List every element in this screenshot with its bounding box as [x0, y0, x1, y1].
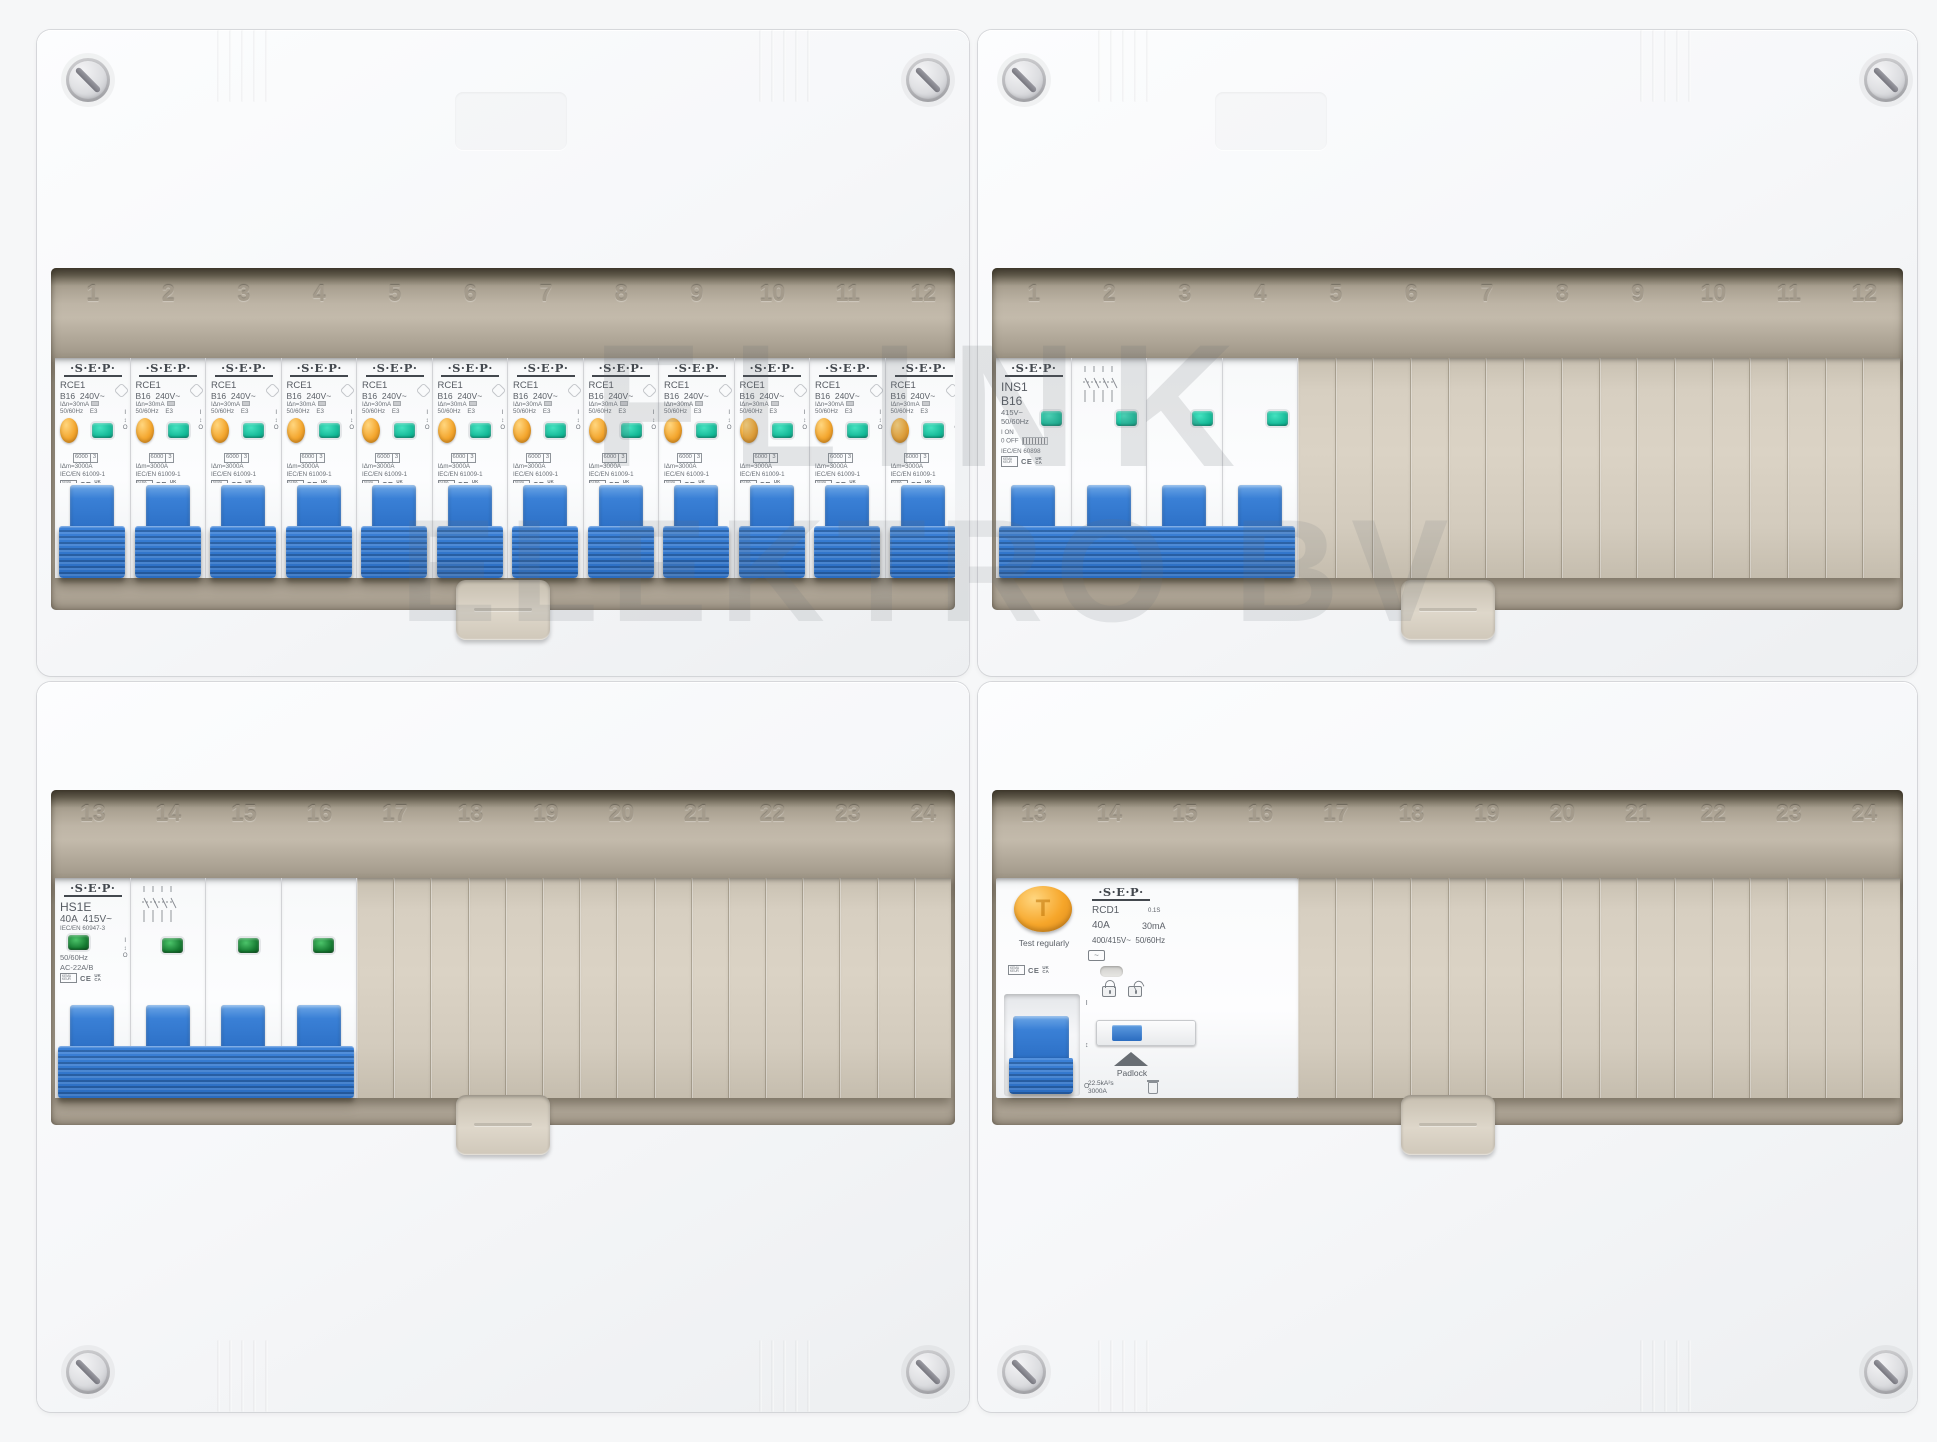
frequency-label: 50/60Hz E3 — [211, 408, 277, 416]
module-number: 4 — [1223, 280, 1299, 310]
utilization-category-label: AC-22A/B — [60, 963, 126, 972]
status-indicator-window — [319, 423, 340, 438]
si-badge — [242, 401, 250, 406]
test-button[interactable] — [362, 418, 380, 443]
on-off-markings: I↕O — [198, 410, 203, 433]
module-number: 24 — [1827, 800, 1903, 830]
status-indicator-window — [1100, 966, 1123, 977]
on-off-markings: I↕O — [349, 410, 354, 433]
rcbo-breaker-rce1[interactable]: ·S·E·P· RCE1 B16 240V~ IΔn=30mA 50/60Hz … — [206, 358, 282, 578]
blanking-strip — [1787, 878, 1825, 1098]
status-indicator-window — [1267, 411, 1288, 426]
sep-brand-logo: ·S·E·P· — [895, 362, 953, 377]
trip-current-label: IΔn=30mA — [211, 401, 277, 409]
kema-keur-mark: KEMA KEUR — [60, 973, 77, 983]
vent-ribs — [1098, 1340, 1149, 1412]
breaking-capacity-label: 3000A — [1088, 1088, 1107, 1095]
toggle-recess — [810, 483, 885, 578]
standard-label: IEC/EN 61009-1 — [438, 471, 504, 479]
rcd-toggle-recess — [1004, 994, 1080, 1096]
status-indicator-window — [772, 423, 793, 438]
sep-brand-logo: ·S·E·P· — [517, 362, 575, 377]
module-number: 23 — [1751, 800, 1827, 830]
frequency-label: 50/60Hz E3 — [60, 408, 126, 416]
status-indicator-window — [238, 938, 259, 953]
rcd-toggle-flap[interactable] — [1009, 1058, 1073, 1094]
isolator-pole-face — [1223, 358, 1298, 483]
rcbo-label-face: ·S·E·P· RCE1 B16 240V~ IΔn=30mA 50/60Hz … — [659, 358, 734, 483]
certification-marks: KEMA KEUR CE UK CA — [1008, 965, 1051, 975]
main-switch-hs1e[interactable]: ·S·E·P· HS1E 40A 415V~ IEC/EN 60947-3 50… — [55, 878, 357, 1098]
blanking-strip — [1674, 878, 1712, 1098]
toggle-recess — [206, 483, 281, 578]
circuit-diagram-icon — [139, 884, 177, 926]
cover-latch[interactable] — [456, 580, 550, 640]
module-number: 1 — [55, 280, 131, 310]
toggle-recess — [357, 483, 432, 578]
toggle-recess — [886, 483, 956, 578]
standard-label: IEC/EN 60947-3 — [60, 925, 126, 933]
rcbo-breaker-rce1[interactable]: ·S·E·P· RCE1 B16 240V~ IΔn=30mA 50/60Hz … — [735, 358, 811, 578]
module-number-strip: 123456789101112 — [55, 280, 955, 310]
module-number-strip: 123456789101112 — [996, 280, 1902, 310]
toggle-recess — [433, 483, 508, 578]
on-off-markings: I↕O — [576, 410, 581, 433]
breaking-capacity-badge: 60003 — [149, 453, 174, 463]
blanking-strip — [1372, 878, 1410, 1098]
sep-brand-logo: ·S·E·P· — [668, 362, 726, 377]
breaker-toggle-flap[interactable] — [588, 526, 654, 578]
test-button[interactable] — [740, 418, 758, 443]
test-button[interactable] — [815, 418, 833, 443]
toggle-recess — [282, 483, 357, 578]
breaker-toggle-flap[interactable] — [512, 526, 578, 578]
on-off-markings: I↕O — [425, 410, 430, 433]
breaker-row: ·S·E·P· INS1 B16 415V~ 50/60Hz I ON 0 OF… — [996, 358, 1900, 578]
frequency-label: 50/60Hz E3 — [891, 408, 956, 416]
status-indicator-window — [1041, 411, 1062, 426]
isolator-toggle-bar[interactable] — [999, 526, 1295, 578]
im-label: IΔm=3000A — [136, 463, 202, 471]
breaking-capacity-badge: 60003 — [753, 453, 778, 463]
voltage-frequency-label: 400/415V~ 50/60Hz — [1092, 936, 1165, 945]
module-number: 19 — [508, 800, 584, 830]
si-badge — [695, 401, 703, 406]
blanking-strip — [728, 878, 765, 1098]
blanking-strip — [1523, 878, 1561, 1098]
rcbo-breaker-rce1[interactable]: ·S·E·P· RCE1 B16 240V~ IΔn=30mA 50/60Hz … — [886, 358, 956, 578]
module-number: 4 — [282, 280, 358, 310]
trip-current-label: IΔn=30mA — [136, 401, 202, 409]
frequency-label: 50/60Hz E3 — [815, 408, 881, 416]
module-number: 11 — [810, 280, 886, 310]
module-number: 15 — [206, 800, 282, 830]
cover-screw — [66, 58, 110, 102]
module-number: 9 — [1600, 280, 1676, 310]
i2t-label: 22.5kA²s — [1088, 1080, 1114, 1087]
isolator-label-face: ·S·E·P· INS1 B16 415V~ 50/60Hz I ON 0 OF… — [996, 358, 1071, 483]
rcbo-breaker-rce1[interactable]: ·S·E·P· RCE1 B16 240V~ IΔn=30mA 50/60Hz … — [508, 358, 584, 578]
status-indicator-window — [168, 423, 189, 438]
breaker-toggle-flap[interactable] — [663, 526, 729, 578]
module-number: 15 — [1147, 800, 1223, 830]
blanking-strip — [393, 878, 430, 1098]
rcbo-label-face: ·S·E·P· RCE1 B16 240V~ IΔn=30mA 50/60Hz … — [131, 358, 206, 483]
padlock-slider[interactable] — [1096, 1020, 1196, 1046]
module-number: 7 — [508, 280, 584, 310]
module-number: 16 — [1223, 800, 1299, 830]
blanking-strip — [1410, 358, 1448, 578]
rcbo-breaker-rce1[interactable]: ·S·E·P· RCE1 B16 240V~ IΔn=30mA 50/60Hz … — [131, 358, 207, 578]
blanking-strip — [505, 878, 542, 1098]
status-indicator-window — [394, 423, 415, 438]
breaker-toggle-flap[interactable] — [739, 526, 805, 578]
cover-latch[interactable] — [1401, 1095, 1495, 1155]
breaking-capacity-badge: 60003 — [828, 453, 853, 463]
rcbo-label-face: ·S·E·P· RCE1 B16 240V~ IΔn=30mA 50/60Hz … — [886, 358, 956, 483]
rcd-test-button[interactable]: T — [1014, 886, 1072, 932]
surge-wave-icon: ~ — [1088, 950, 1105, 961]
serial-barcode — [1022, 437, 1048, 445]
blanking-strips — [1298, 878, 1900, 1098]
blanking-strip — [1825, 878, 1863, 1098]
module-number: 21 — [659, 800, 735, 830]
blanking-strip — [542, 878, 579, 1098]
module-number: 24 — [886, 800, 956, 830]
on-off-markings: I↕O — [123, 410, 128, 433]
padlock-pointer-icon — [1114, 1052, 1148, 1066]
trip-current-label: IΔn=30mA — [815, 401, 881, 409]
breaker-row: T Test regularly KEMA KEUR CE UK CA ·S·E… — [996, 878, 1900, 1098]
breaking-capacity-badge: 60003 — [224, 453, 249, 463]
standard-label: IEC/EN 61009-1 — [287, 471, 353, 479]
isolator-pole-face — [1072, 358, 1147, 483]
test-button[interactable] — [287, 418, 305, 443]
module-number: 12 — [886, 280, 956, 310]
standard-label: IEC/EN 61009-1 — [740, 471, 806, 479]
standard-label: IEC/EN 61009-1 — [60, 471, 126, 479]
module-number: 7 — [1449, 280, 1525, 310]
blanking-strip — [1448, 358, 1486, 578]
trip-current-label: IΔn=30mA — [287, 401, 353, 409]
status-indicator-window — [1116, 411, 1137, 426]
rcbo-label-face: ·S·E·P· RCE1 B16 240V~ IΔn=30mA 50/60Hz … — [433, 358, 508, 483]
test-button[interactable] — [60, 418, 78, 443]
standard-label: IEC/EN 60898 — [1001, 448, 1067, 456]
on-off-markings: I↕O — [954, 410, 955, 433]
vent-ribs — [217, 30, 268, 102]
sep-brand-logo: ·S·E·P· — [64, 362, 122, 377]
si-badge — [771, 401, 779, 406]
module-number: 20 — [1525, 800, 1601, 830]
toggle-recess — [659, 483, 734, 578]
test-button[interactable] — [891, 418, 909, 443]
test-button[interactable] — [513, 418, 531, 443]
test-button[interactable] — [438, 418, 456, 443]
kema-keur-mark: KEMA KEUR — [1008, 965, 1025, 975]
frequency-label: 50/60Hz E3 — [740, 408, 806, 416]
blanking-strip — [1485, 358, 1523, 578]
rcbo-breaker-rce1[interactable]: ·S·E·P· RCE1 B16 240V~ IΔn=30mA 50/60Hz … — [659, 358, 735, 578]
breaking-capacity-badge: 60003 — [73, 453, 98, 463]
im-label: IΔm=3000A — [664, 463, 730, 471]
sep-brand-logo: ·S·E·P· — [366, 362, 424, 377]
switch-toggle-bar[interactable] — [58, 1046, 354, 1098]
ukca-mark: UK CA — [94, 974, 103, 983]
breaking-capacity-badge: 60003 — [375, 453, 400, 463]
im-label: IΔm=3000A — [589, 463, 655, 471]
rcbo-breaker-rce1[interactable]: ·S·E·P· RCE1 B16 240V~ IΔn=30mA 50/60Hz … — [357, 358, 433, 578]
padlock-slider-thumb[interactable] — [1112, 1025, 1142, 1041]
rcbo-label-face: ·S·E·P· RCE1 B16 240V~ IΔn=30mA 50/60Hz … — [810, 358, 885, 483]
rcbo-label-face: ·S·E·P· RCE1 B16 240V~ IΔn=30mA 50/60Hz … — [735, 358, 810, 483]
blanking-strip — [430, 878, 467, 1098]
trip-current-label: IΔn=30mA — [362, 401, 428, 409]
rcd-toggle[interactable] — [1013, 1016, 1069, 1062]
cover-latch[interactable] — [456, 1095, 550, 1155]
cover-screw — [1002, 58, 1046, 102]
breaker-row: ·S·E·P· RCE1 B16 240V~ IΔn=30mA 50/60Hz … — [55, 358, 955, 578]
si-badge — [393, 401, 401, 406]
sep-brand-logo: ·S·E·P· — [592, 362, 650, 377]
breaker-toggle-flap[interactable] — [437, 526, 503, 578]
blanking-strip — [1862, 878, 1900, 1098]
breaker-toggle-flap[interactable] — [814, 526, 880, 578]
im-label: IΔm=3000A — [740, 463, 806, 471]
si-badge — [469, 401, 477, 406]
blanking-strip — [802, 878, 839, 1098]
vent-ribs — [1640, 1340, 1691, 1412]
breaker-toggle-flap[interactable] — [135, 526, 201, 578]
certification-marks: KEMA KEUR CE UK CA — [60, 973, 126, 983]
blanking-strip — [1749, 878, 1787, 1098]
toggle-recess — [55, 483, 130, 578]
breaking-capacity-badge: 60003 — [677, 453, 702, 463]
vent-ribs — [217, 1340, 268, 1412]
blanking-strip — [1410, 878, 1448, 1098]
trip-current-label: IΔn=30mA — [664, 401, 730, 409]
blanking-strip — [1749, 358, 1787, 578]
toggle-recess — [735, 483, 810, 578]
module-number: 5 — [1298, 280, 1374, 310]
enclosure-top-right: 123456789101112 ·S·E·P· INS1 B16 415V~ 5… — [978, 30, 1917, 676]
breaker-toggle-flap[interactable] — [361, 526, 427, 578]
rcbo-label-face: ·S·E·P· RCE1 B16 240V~ IΔn=30mA 50/60Hz … — [55, 358, 130, 483]
module-number: 17 — [357, 800, 433, 830]
frequency-label: 50/60Hz E3 — [589, 408, 655, 416]
sep-brand-logo: ·S·E·P· — [139, 362, 197, 377]
blanking-strip — [914, 878, 951, 1098]
breaking-capacity-badge: 60003 — [300, 453, 325, 463]
module-number: 22 — [1676, 800, 1752, 830]
sep-brand-logo: ·S·E·P· — [743, 362, 801, 377]
si-badge — [922, 401, 930, 406]
test-button[interactable] — [136, 418, 154, 443]
vent-ribs — [1098, 30, 1149, 102]
test-button[interactable] — [211, 418, 229, 443]
breaking-capacity-badge: 60003 — [526, 453, 551, 463]
status-indicator-window — [923, 423, 944, 438]
molded-brand-plate — [455, 92, 567, 150]
si-badge — [846, 401, 854, 406]
cover-latch[interactable] — [1401, 580, 1495, 640]
blanking-strip — [1298, 878, 1335, 1098]
model-label: RCD1 — [1092, 905, 1119, 916]
im-label: IΔm=3000A — [362, 463, 428, 471]
status-indicator-window — [92, 423, 113, 438]
module-number: 8 — [584, 280, 660, 310]
cover-screw — [66, 1350, 110, 1394]
sep-brand-logo: ·S·E·P· — [215, 362, 273, 377]
breaker-toggle-flap[interactable] — [210, 526, 276, 578]
main-switch-pole-face — [131, 878, 206, 1003]
status-indicator-window — [847, 423, 868, 438]
trip-current-label: IΔn=30mA — [60, 401, 126, 409]
status-indicator-window — [696, 423, 717, 438]
frequency-label: 50/60Hz E3 — [136, 408, 202, 416]
frequency-label: 50/60Hz — [60, 953, 126, 962]
blanking-strip — [1712, 878, 1750, 1098]
module-number: 1 — [996, 280, 1072, 310]
vent-ribs — [759, 30, 810, 102]
din-rail-window: 131415161718192021222324 ·S·E·P· HS1E 40… — [51, 790, 955, 1125]
disposal-icon — [1148, 1082, 1158, 1094]
ce-mark: CE — [80, 974, 91, 983]
model-label: INS1 — [1001, 380, 1067, 394]
delay-class-label: 0.1S — [1148, 908, 1160, 914]
trip-current-label: IΔn=30mA — [513, 401, 579, 409]
rcbo-label-face: ·S·E·P· RCE1 B16 240V~ IΔn=30mA 50/60Hz … — [282, 358, 357, 483]
rcbo-label-face: ·S·E·P· RCE1 B16 240V~ IΔn=30mA 50/60Hz … — [357, 358, 432, 483]
rcbo-breaker-rce1[interactable]: ·S·E·P· RCE1 B16 240V~ IΔn=30mA 50/60Hz … — [810, 358, 886, 578]
breaker-row: ·S·E·P· HS1E 40A 415V~ IEC/EN 60947-3 50… — [55, 878, 951, 1098]
im-label: IΔm=3000A — [815, 463, 881, 471]
toggle-recess — [131, 483, 206, 578]
test-button[interactable] — [589, 418, 607, 443]
rcbo-breaker-rce1[interactable]: ·S·E·P· RCE1 B16 240V~ IΔn=30mA 50/60Hz … — [584, 358, 660, 578]
module-number: 11 — [1751, 280, 1827, 310]
blanking-strip — [1674, 358, 1712, 578]
blanking-strip — [1561, 878, 1599, 1098]
on-label: I ON — [1001, 429, 1067, 437]
blanking-strip — [1712, 358, 1750, 578]
standard-label: IEC/EN 61009-1 — [136, 471, 202, 479]
sep-brand-logo: ·S·E·P· — [441, 362, 499, 377]
module-number: 18 — [1374, 800, 1450, 830]
breaker-toggle-flap[interactable] — [890, 526, 955, 578]
main-switch-pole-face — [282, 878, 357, 1003]
cover-screw — [906, 1350, 950, 1394]
blanking-strip — [1862, 358, 1900, 578]
on-off-markings: I↕O — [123, 938, 128, 961]
blanking-strip — [877, 878, 914, 1098]
module-number: 10 — [735, 280, 811, 310]
closed-padlock-icon — [1102, 986, 1116, 997]
si-badge — [544, 401, 552, 406]
rcd-device-rcd1[interactable]: T Test regularly KEMA KEUR CE UK CA ·S·E… — [996, 878, 1298, 1098]
vent-ribs — [1640, 30, 1691, 102]
blanking-strip — [1372, 358, 1410, 578]
blanking-strip — [654, 878, 691, 1098]
toggle-recess — [508, 483, 583, 578]
frequency-label: 50/60Hz E3 — [664, 408, 730, 416]
im-label: IΔm=3000A — [287, 463, 353, 471]
breaker-toggle-flap[interactable] — [286, 526, 352, 578]
rcbo-breaker-rce1[interactable]: ·S·E·P· RCE1 B16 240V~ IΔn=30mA 50/60Hz … — [282, 358, 358, 578]
module-number: 21 — [1600, 800, 1676, 830]
on-off-markings: I↕O — [727, 410, 732, 433]
standard-label: IEC/EN 61009-1 — [589, 471, 655, 479]
padlock-label: Padlock — [1096, 1068, 1168, 1078]
enclosure-bottom-right: 131415161718192021222324 T Test regularl… — [978, 682, 1917, 1412]
padlock-state-icons — [1102, 986, 1142, 997]
din-rail-window: 123456789101112 ·S·E·P· INS1 B16 415V~ 5… — [992, 268, 1903, 610]
isolator-ins1[interactable]: ·S·E·P· INS1 B16 415V~ 50/60Hz I ON 0 OF… — [996, 358, 1298, 578]
module-number: 3 — [206, 280, 282, 310]
trip-current-label: IΔn=30mA — [438, 401, 504, 409]
rcbo-breaker-rce1[interactable]: ·S·E·P· RCE1 B16 240V~ IΔn=30mA 50/60Hz … — [55, 358, 131, 578]
trip-current-label: IΔn=30mA — [891, 401, 956, 409]
blanking-strip — [1448, 878, 1486, 1098]
module-number: 3 — [1147, 280, 1223, 310]
module-number: 17 — [1298, 800, 1374, 830]
status-indicator-window — [545, 423, 566, 438]
main-switch-label-face: ·S·E·P· HS1E 40A 415V~ IEC/EN 60947-3 50… — [55, 878, 130, 1003]
rcbo-breaker-rce1[interactable]: ·S·E·P· RCE1 B16 240V~ IΔn=30mA 50/60Hz … — [433, 358, 509, 578]
trip-current-label: IΔn=30mA — [740, 401, 806, 409]
module-number: 13 — [996, 800, 1072, 830]
sep-brand-logo: ·S·E·P· — [1005, 362, 1063, 377]
breaking-capacity-badge: 60003 — [451, 453, 476, 463]
blanking-strips — [357, 878, 951, 1098]
test-button[interactable] — [664, 418, 682, 443]
im-label: IΔm=3000A — [438, 463, 504, 471]
on-off-markings: I↕O — [500, 410, 505, 433]
rating-label: B16 240V~ — [891, 391, 956, 401]
im-label: IΔm=3000A — [891, 463, 956, 471]
rating-label: 40A 415V~ — [60, 914, 126, 925]
module-number: 23 — [810, 800, 886, 830]
circuit-diagram-icon — [1080, 364, 1118, 406]
status-indicator-window — [68, 935, 89, 950]
blanking-strip — [1636, 358, 1674, 578]
si-badge — [620, 401, 628, 406]
blanking-strip — [691, 878, 728, 1098]
toggle-recess — [584, 483, 659, 578]
din-rail-window: 123456789101112 ·S·E·P· RCE1 B16 240V~ I… — [51, 268, 955, 610]
status-indicator-window — [621, 423, 642, 438]
frequency-label: 50/60Hz E3 — [362, 408, 428, 416]
blanking-strip — [1599, 358, 1637, 578]
trip-current-label: IΔn=30mA — [589, 401, 655, 409]
breaker-toggle-flap[interactable] — [59, 526, 125, 578]
sep-brand-logo: ·S·E·P· — [819, 362, 877, 377]
ukca-mark: UK CA — [1042, 966, 1051, 975]
standard-label: IEC/EN 61009-1 — [891, 471, 956, 479]
module-number: 6 — [433, 280, 509, 310]
module-number: 9 — [659, 280, 735, 310]
sensitivity-label: 30mA — [1142, 921, 1166, 931]
im-label: IΔm=3000A — [211, 463, 277, 471]
ukca-mark: UK CA — [1035, 457, 1044, 466]
breaking-capacity-badge: 60003 — [602, 453, 627, 463]
module-number: 14 — [1072, 800, 1148, 830]
standard-label: IEC/EN 61009-1 — [664, 471, 730, 479]
blanking-strip — [1485, 878, 1523, 1098]
blanking-strip — [616, 878, 653, 1098]
si-badge — [318, 401, 326, 406]
module-number: 6 — [1374, 280, 1450, 310]
